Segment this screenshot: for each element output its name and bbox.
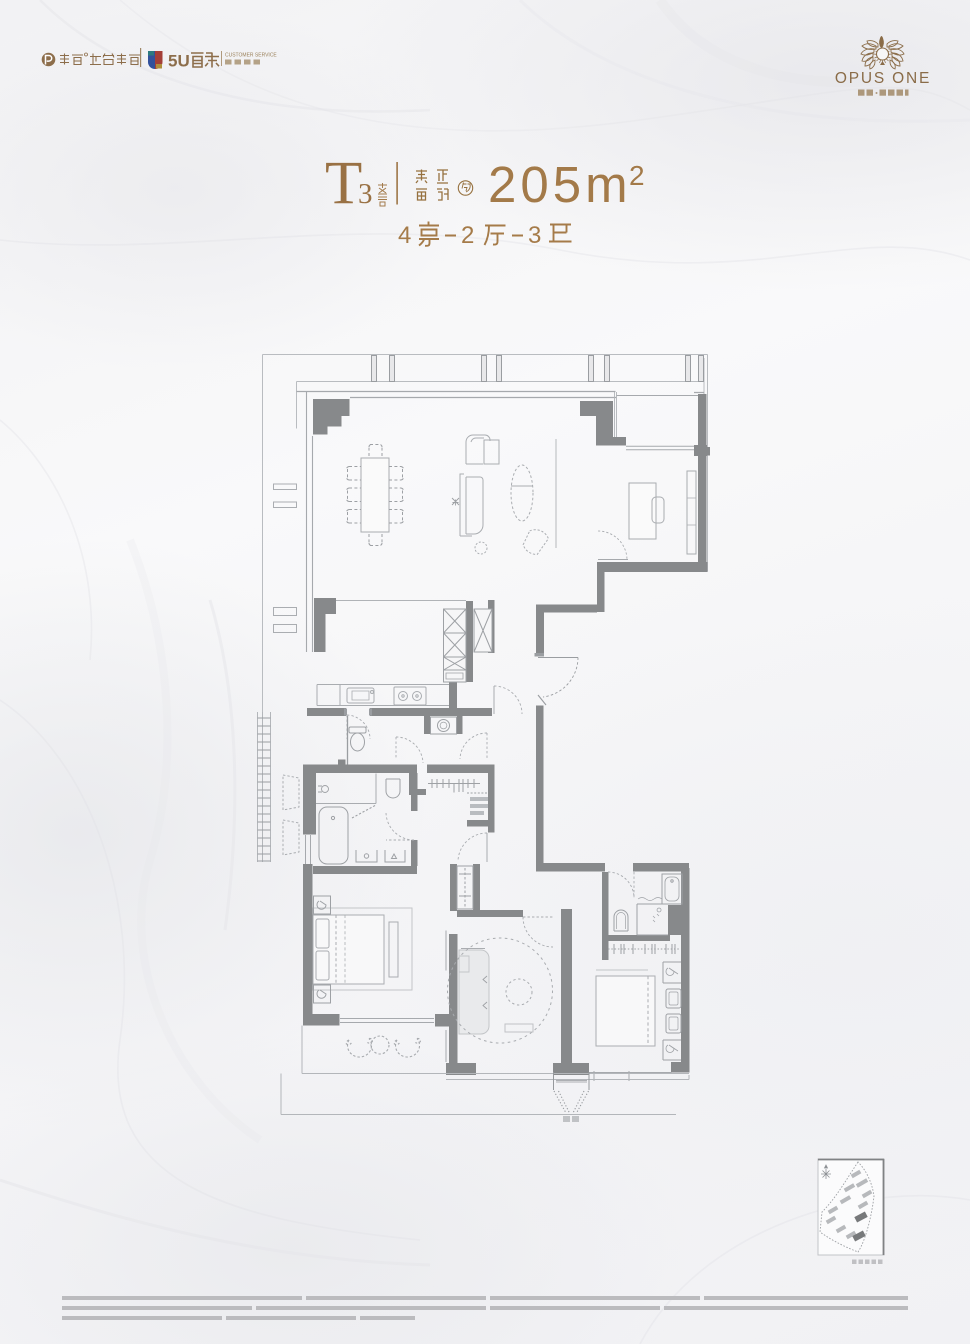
svg-text:2: 2 xyxy=(461,222,474,249)
svg-text:4: 4 xyxy=(398,222,411,249)
svg-text:CUSTOMER SERVICE: CUSTOMER SERVICE xyxy=(225,53,277,59)
svg-text:2: 2 xyxy=(629,160,645,191)
svg-text:3: 3 xyxy=(528,222,541,249)
svg-text:OPUS ONE: OPUS ONE xyxy=(835,70,931,87)
svg-text:5U: 5U xyxy=(168,52,190,71)
svg-text:205m: 205m xyxy=(488,156,632,213)
svg-text:T: T xyxy=(325,150,362,217)
svg-text:3: 3 xyxy=(358,178,373,210)
